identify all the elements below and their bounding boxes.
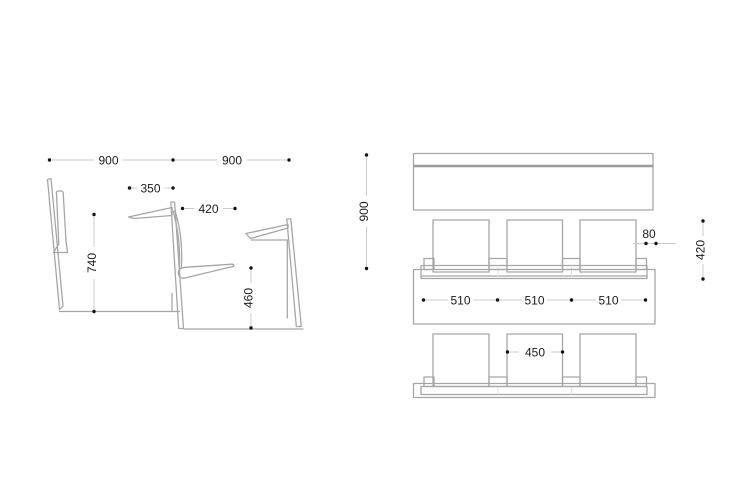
seat-plan-5 — [507, 334, 563, 387]
desk-2 — [129, 208, 173, 219]
dim-desk-height: 740 — [85, 213, 99, 313]
dim-label-seat-width: 450 — [525, 346, 545, 360]
seat-plan-2 — [507, 220, 563, 272]
dim-label-spacing-1: 510 — [450, 294, 470, 308]
dim-seat-height: 460 — [242, 266, 256, 329]
dim-row-pitch-plan: 900 — [357, 153, 371, 270]
dim-label-spacing-2: 510 — [524, 294, 544, 308]
seat-plan-1 — [433, 220, 489, 272]
dim-seat-spacing: 510 510 510 — [422, 294, 647, 308]
dim-row-pitch-left: 900 — [48, 154, 175, 168]
backrest-1 — [48, 179, 64, 310]
seat-profile-3 — [246, 219, 301, 327]
plan-row-bottom — [414, 334, 656, 398]
plan-desk-slab — [414, 154, 654, 211]
seat-profile-1 — [48, 179, 68, 310]
dim-label-row-pitch-plan: 900 — [357, 201, 371, 221]
dim-row-pitch-right: 900 — [175, 154, 291, 168]
technical-drawing: 900 900 350 420 — [0, 0, 750, 492]
dim-label-edge-gap: 80 — [642, 227, 656, 241]
seat-pan-2 — [178, 264, 234, 278]
dim-label-desk-depth: 350 — [140, 182, 160, 196]
drawing-page: 900 900 350 420 — [0, 0, 750, 492]
dim-seat-depth-side: 420 — [181, 202, 237, 216]
seat-plan-3 — [580, 220, 636, 272]
side-elevation-view: 900 900 350 420 — [48, 154, 304, 330]
desk-3 — [246, 225, 288, 239]
stanchion-tab — [563, 377, 581, 387]
desk-slab-outline — [414, 154, 654, 211]
leg-3 — [287, 219, 302, 327]
dim-unit-depth: 420 — [694, 219, 708, 280]
dim-label-spacing-3: 510 — [598, 294, 618, 308]
seat-plan-4 — [433, 334, 489, 387]
beam-outer-bottom — [414, 384, 656, 398]
dim-label-desk-height: 740 — [85, 253, 99, 273]
stanchion-tab — [636, 377, 647, 387]
dim-label-pitch-right: 900 — [222, 154, 242, 168]
stanchion-tab — [489, 377, 507, 387]
beam-rail-bottom — [421, 387, 647, 395]
plan-view: 510 510 510 80 900 420 — [357, 153, 708, 397]
dim-desk-depth: 350 — [128, 182, 175, 196]
stanchion-tab — [636, 259, 647, 270]
dim-edge-gap: 80 — [633, 227, 676, 245]
dim-seat-width: 450 — [506, 346, 564, 360]
dim-label-unit-depth: 420 — [694, 240, 708, 260]
dim-label-seat-height: 460 — [242, 288, 256, 308]
dim-label-seat-depth-side: 420 — [198, 202, 218, 216]
dim-label-pitch-left: 900 — [98, 154, 118, 168]
seat-profile-2 — [129, 202, 234, 329]
seat-plan-6 — [580, 334, 636, 387]
plan-row-middle — [414, 220, 656, 324]
